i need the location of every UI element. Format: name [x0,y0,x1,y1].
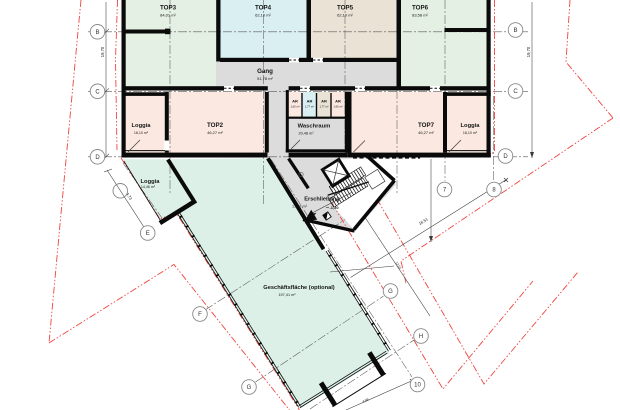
svg-text:46,27 m²: 46,27 m² [207,130,223,135]
svg-text:AR: AR [292,99,298,104]
svg-text:Loggia: Loggia [461,123,481,129]
svg-text:62,10 m²: 62,10 m² [337,12,353,17]
svg-text:10: 10 [414,383,421,389]
svg-text:197,41 m²: 197,41 m² [278,293,296,297]
svg-text:18,10 m²: 18,10 m² [134,131,149,135]
svg-text:Waschraum: Waschraum [298,124,331,130]
svg-text:G: G [247,385,252,391]
svg-text:13,27 m²: 13,27 m² [292,204,308,208]
svg-text:19,70: 19,70 [100,46,105,57]
svg-text:C: C [95,89,100,95]
svg-text:C: C [513,89,518,95]
svg-text:TOP7: TOP7 [418,122,435,129]
svg-text:TOP6: TOP6 [412,5,429,12]
svg-text:Erschließung: Erschließung [304,197,340,203]
svg-text:14,46 m²: 14,46 m² [141,185,156,189]
svg-text:AR: AR [321,99,327,104]
svg-text:51,78 m²: 51,78 m² [257,76,273,81]
svg-text:H: H [419,334,423,340]
svg-text:E: E [146,231,150,237]
svg-text:TOP5: TOP5 [337,5,354,12]
svg-text:AR: AR [335,99,341,104]
svg-text:Geschäftsfläche (optional): Geschäftsfläche (optional) [263,285,335,291]
svg-text:TOP3: TOP3 [160,5,177,12]
svg-text:84,01 m²: 84,01 m² [160,12,176,17]
svg-text:G: G [388,289,393,295]
svg-text:1,60 m²: 1,60 m² [333,105,342,109]
svg-text:TOP4: TOP4 [255,5,272,12]
svg-text:AR: AR [307,99,313,104]
svg-text:20,48 m²: 20,48 m² [299,131,315,135]
svg-text:Loggia: Loggia [132,123,152,129]
svg-text:Gang: Gang [257,68,273,75]
svg-text:TOP2: TOP2 [207,122,224,129]
svg-text:62,10 m²: 62,10 m² [255,12,271,17]
svg-text:1,60 m²: 1,60 m² [290,105,299,109]
svg-text:1,77 m²: 1,77 m² [305,105,314,109]
svg-text:19,70: 19,70 [526,46,531,57]
svg-text:83,58 m²: 83,58 m² [412,12,428,17]
svg-text:B: B [95,30,99,36]
svg-text:46,27 m²: 46,27 m² [418,130,434,135]
svg-text:D: D [503,154,508,160]
svg-text:B: B [513,28,517,34]
svg-text:D: D [95,155,100,161]
svg-text:-1,30: -1,30 [329,205,339,210]
svg-text:1,77 m²: 1,77 m² [319,105,328,109]
svg-text:F: F [198,312,202,318]
svg-text:18,10 m²: 18,10 m² [463,131,478,135]
